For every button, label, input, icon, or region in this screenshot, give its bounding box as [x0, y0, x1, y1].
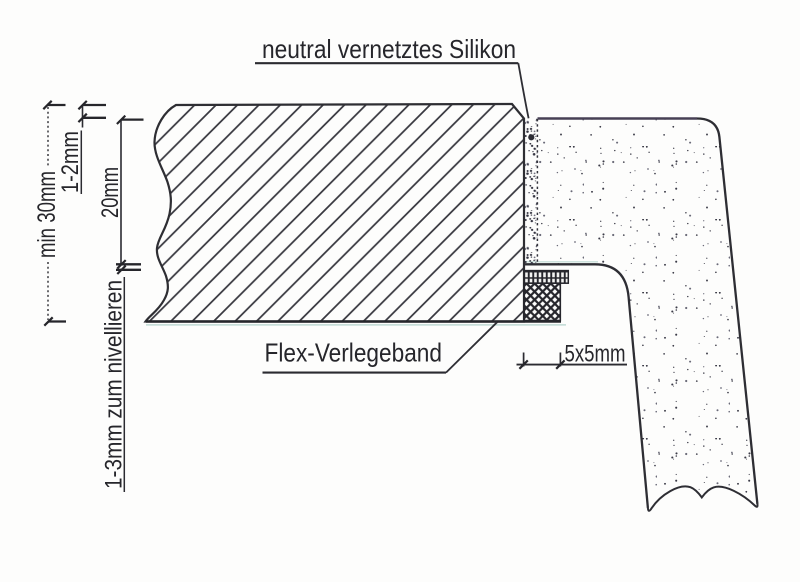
svg-text:5x5mm: 5x5mm: [565, 341, 626, 368]
svg-text:neutral vernetztes Silikon: neutral vernetztes Silikon: [262, 34, 516, 64]
svg-text:1-2mm: 1-2mm: [57, 131, 84, 193]
svg-text:Flex-Verlegeband: Flex-Verlegeband: [265, 338, 443, 368]
svg-text:20mm: 20mm: [97, 167, 124, 218]
svg-text:1-3mm zum nivellieren: 1-3mm zum nivellieren: [101, 280, 128, 489]
